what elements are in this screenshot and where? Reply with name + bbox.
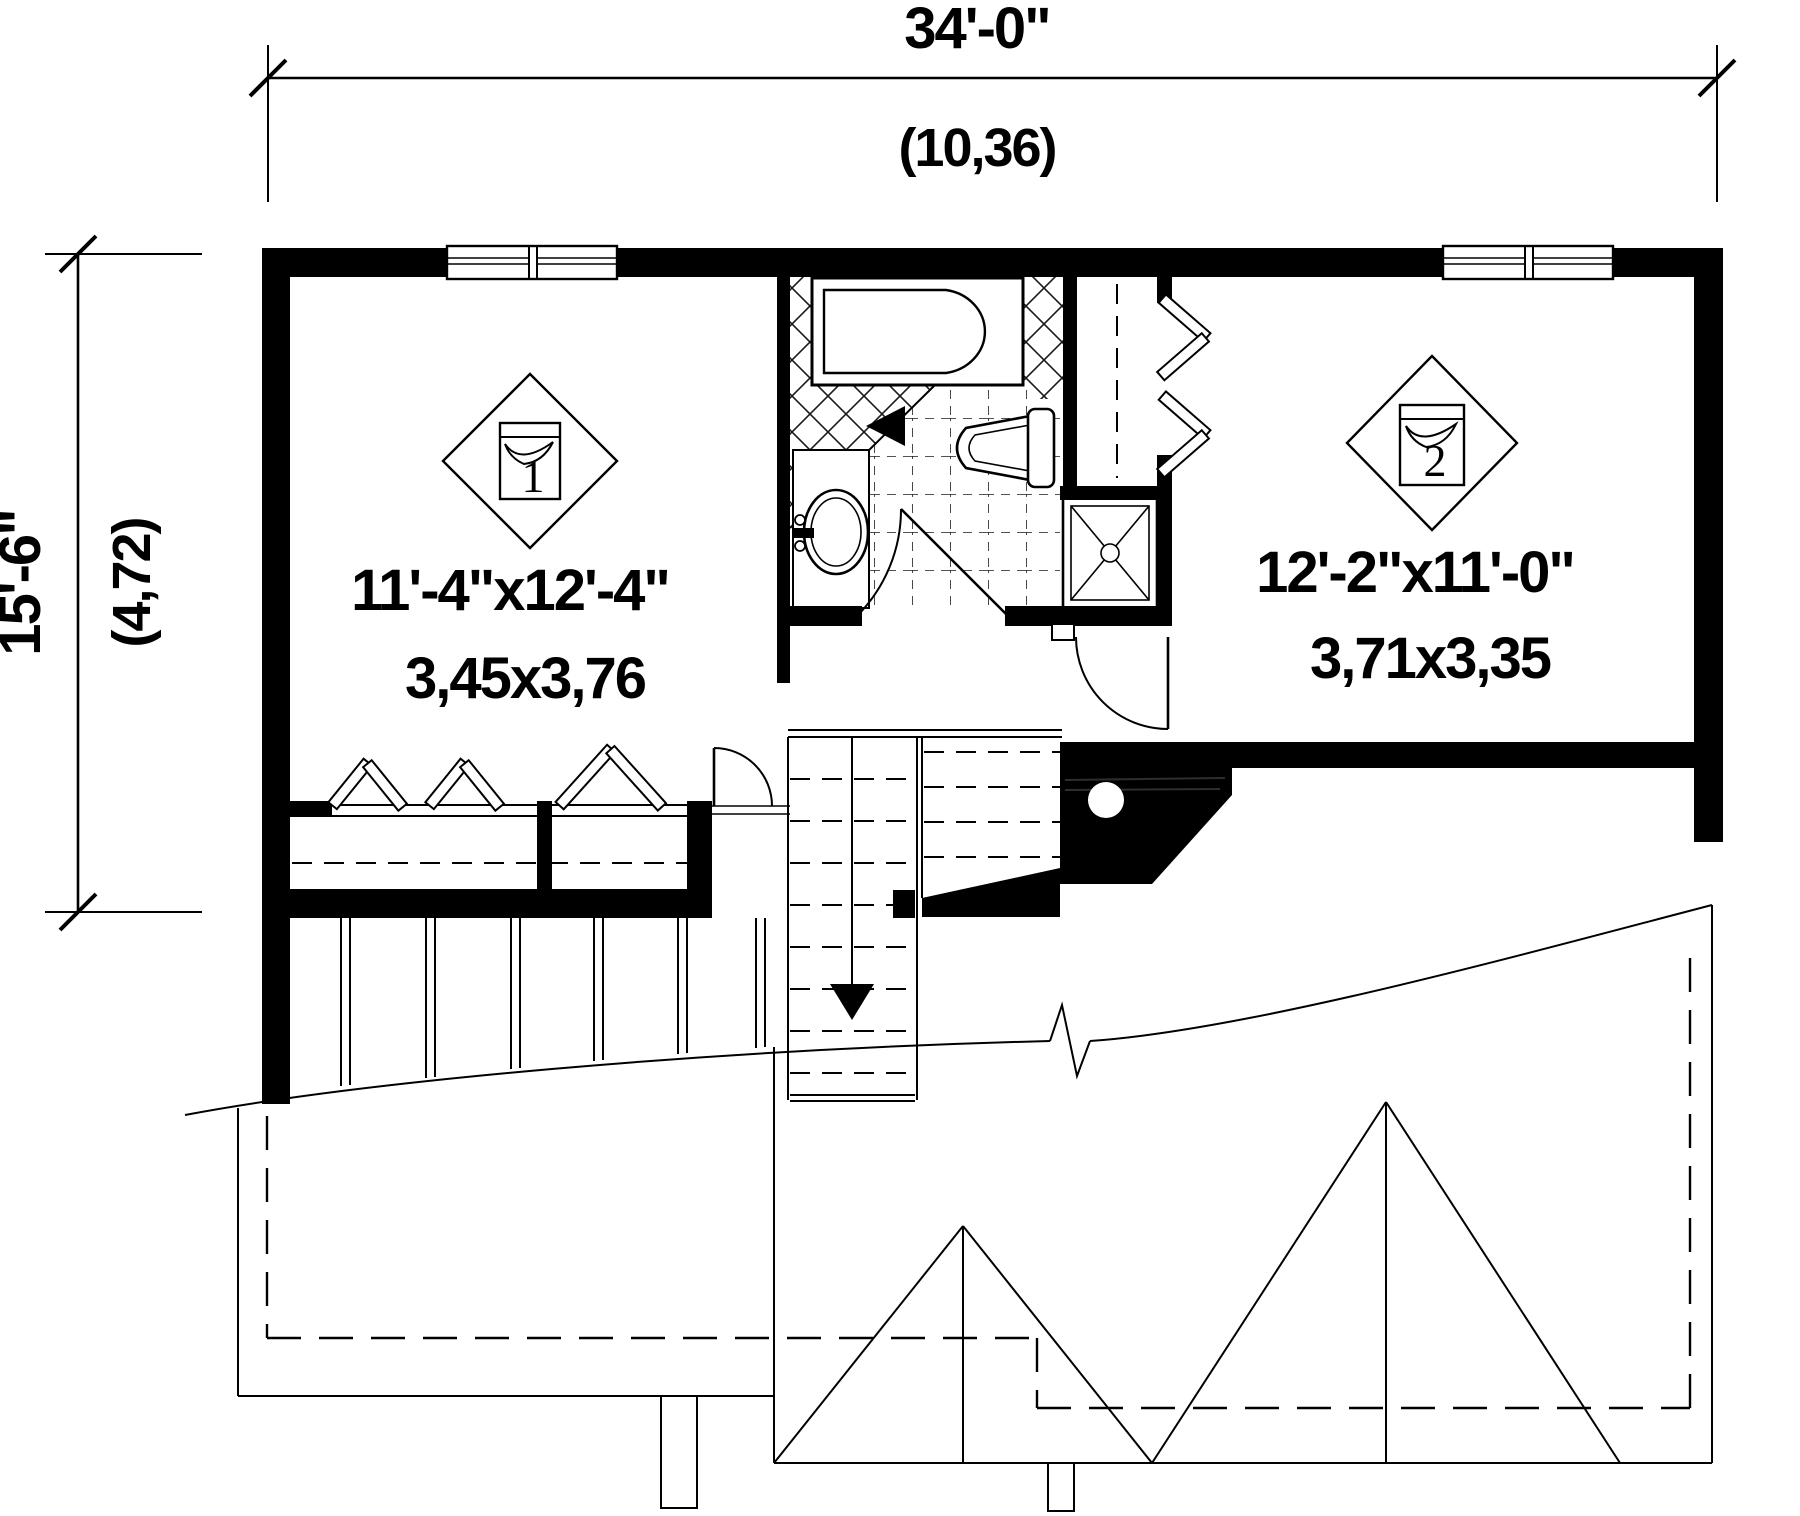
mosaic-tile-strip — [1021, 277, 1063, 399]
room1-number: 1 — [522, 451, 545, 502]
vanity-sink — [793, 450, 869, 608]
railing-post — [341, 918, 765, 1086]
wall-shower-right — [1157, 486, 1172, 626]
window-top-left — [447, 246, 617, 279]
wall-bottom-left — [262, 889, 712, 918]
wall-left — [262, 248, 290, 916]
left-dimension-metric: (4,72) — [102, 518, 162, 647]
top-dimension-metric: (10,36) — [898, 118, 1055, 178]
roof-eave-curve-left — [185, 1041, 1050, 1115]
wall-shower-top — [1060, 486, 1172, 500]
roof-eave-curve-right — [1090, 905, 1712, 1041]
wall-below-bedroom2 — [1060, 742, 1723, 768]
floor-plan-drawing: 34'-0" (10,36) 15'-6" (4,72) — [0, 0, 1800, 1516]
room2-marker: 2 — [1347, 356, 1517, 530]
wall-left-lower — [262, 916, 290, 1104]
faucet-handle — [795, 515, 805, 525]
bifold-door-chevron — [328, 745, 666, 811]
top-dimension-imperial: 34'-0" — [904, 0, 1049, 61]
bathtub — [812, 278, 1023, 385]
flue-circle — [1088, 782, 1124, 818]
closet-partition — [537, 801, 552, 890]
room1-marker: 1 — [443, 374, 617, 548]
faucet-handle — [795, 541, 805, 551]
window-top-right — [1443, 246, 1613, 279]
room2-size-imperial: 12'-2"x11'-0" — [1256, 540, 1574, 605]
room1-size-imperial: 11'-4"x12'-4" — [351, 558, 669, 623]
deck-railing — [341, 918, 765, 1086]
floor-plan-page: 34'-0" (10,36) 15'-6" (4,72) — [0, 0, 1800, 1516]
bedroom1-closet — [290, 745, 712, 863]
room2-number: 2 — [1424, 435, 1447, 486]
top-dimension: 34'-0" (10,36) — [250, 0, 1735, 202]
chimney-stack — [661, 1396, 697, 1508]
room2-size-metric: 3,71x3,35 — [1310, 626, 1551, 691]
bifold-door-chevron — [1157, 294, 1210, 477]
wall-bathroom-bottom — [777, 606, 862, 626]
stair-treads-right-flight — [924, 752, 1060, 857]
bedroom2-closet — [1117, 284, 1210, 478]
mosaic-tile-strip — [790, 277, 814, 387]
shower-drain — [1101, 544, 1119, 562]
room1-size-metric: 3,45x3,76 — [405, 646, 646, 711]
door-jamb — [1052, 624, 1074, 640]
closet-hall-door — [712, 748, 790, 814]
toilet-tank — [1028, 409, 1054, 487]
faucet-spout — [794, 528, 814, 538]
stair-down-arrow — [830, 984, 874, 1020]
shower — [1063, 498, 1157, 608]
lower-roof-outline — [185, 905, 1712, 1511]
bedroom2-door — [1052, 624, 1168, 729]
left-dimension-imperial: 15'-6" — [0, 510, 53, 655]
stair-base-wedge — [922, 868, 1060, 917]
chimney-fireplace — [1060, 768, 1232, 884]
roof-gable-left — [774, 1226, 1152, 1463]
wall-bathroom-right — [1063, 277, 1077, 490]
wall-shower-bottom — [1005, 606, 1172, 626]
break-line-symbol — [1050, 1005, 1090, 1076]
chimney-stack — [1048, 1463, 1074, 1511]
closet-header-segment — [290, 801, 332, 817]
closet-partition — [687, 801, 712, 890]
left-dimension: 15'-6" (4,72) — [0, 236, 202, 930]
